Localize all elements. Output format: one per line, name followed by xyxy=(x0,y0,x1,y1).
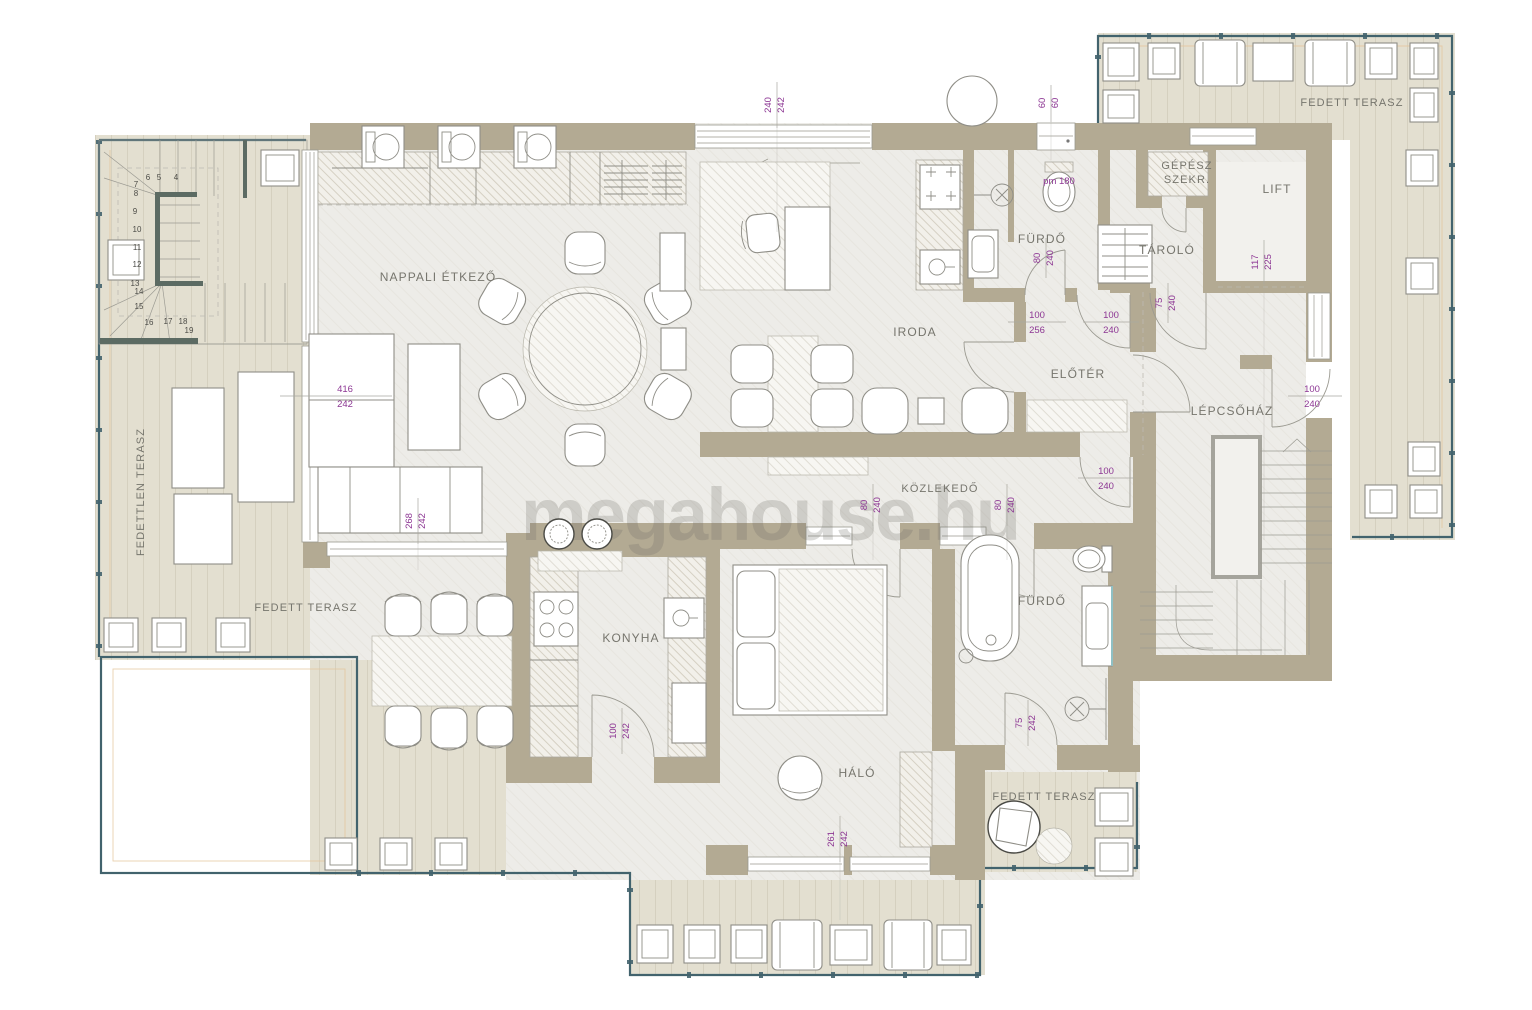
svg-text:240: 240 xyxy=(872,497,883,513)
washer-icon xyxy=(438,126,480,168)
step-number: 10 xyxy=(133,225,142,234)
step-number: 19 xyxy=(185,326,194,335)
room-label-storage: TÁROLÓ xyxy=(1139,242,1195,257)
svg-text:242: 242 xyxy=(776,97,787,113)
svg-text:240: 240 xyxy=(763,97,774,113)
planter xyxy=(1410,43,1438,79)
planter xyxy=(1103,90,1139,123)
dim-wc: pm 180 xyxy=(1043,176,1075,187)
room-label-office: IRODA xyxy=(893,325,937,339)
window xyxy=(1190,128,1256,145)
round-table xyxy=(1036,828,1072,864)
svg-text:225: 225 xyxy=(1263,254,1274,270)
svg-text:100: 100 xyxy=(1098,466,1114,477)
step-number: 4 xyxy=(174,173,179,182)
window-band xyxy=(695,125,872,148)
svg-text:242: 242 xyxy=(839,831,850,847)
svg-text:117: 117 xyxy=(1250,254,1261,269)
planter xyxy=(637,925,673,963)
svg-text:240: 240 xyxy=(1045,250,1056,266)
svg-text:242: 242 xyxy=(1027,715,1038,731)
pillow xyxy=(737,571,775,637)
step-number: 8 xyxy=(134,189,139,198)
floor-plan-canvas: 4 5 6 7 8 9 10 11 12 13 14 15 16 17 18 1… xyxy=(0,0,1532,1010)
svg-text:256: 256 xyxy=(1029,325,1045,336)
kitchenette xyxy=(916,160,963,290)
terrace-label-bottom-right: FEDETT TERASZ xyxy=(992,791,1095,803)
svg-text:75: 75 xyxy=(1014,718,1025,729)
svg-text:240: 240 xyxy=(1098,481,1114,492)
planter xyxy=(1095,788,1133,826)
side-table xyxy=(918,398,944,424)
mat xyxy=(1027,400,1127,432)
planter xyxy=(1406,150,1438,186)
room-label-lift: LIFT xyxy=(1262,182,1291,196)
lounger xyxy=(1305,40,1355,86)
svg-text:242: 242 xyxy=(621,723,632,739)
planter xyxy=(380,838,412,870)
vanity-sink-icon xyxy=(1082,586,1112,666)
planter xyxy=(1148,43,1180,79)
svg-text:268: 268 xyxy=(404,513,415,529)
room-label-living: NAPPALI ÉTKEZŐ xyxy=(380,269,497,284)
vanity-sink-icon xyxy=(968,230,998,278)
room-label-mech-1: GÉPÉSZ xyxy=(1161,159,1212,172)
svg-text:75: 75 xyxy=(1154,298,1165,309)
planter xyxy=(1365,43,1397,79)
room-label-stairwell: LÉPCSŐHÁZ xyxy=(1191,403,1274,418)
step-number: 15 xyxy=(135,302,144,311)
planter xyxy=(1095,838,1133,876)
planter xyxy=(937,925,971,965)
desk xyxy=(785,207,830,290)
room-label-bath-bottom: FÜRDŐ xyxy=(1018,593,1066,608)
lift-room xyxy=(1216,162,1306,281)
room-label-corridor: KÖZLEKEDŐ xyxy=(901,481,978,495)
planter xyxy=(1410,88,1438,122)
step-number: 7 xyxy=(134,180,139,189)
svg-text:100: 100 xyxy=(1029,310,1045,321)
svg-text:242: 242 xyxy=(417,513,428,529)
svg-text:261: 261 xyxy=(826,831,837,847)
planter xyxy=(216,618,250,652)
svg-text:60: 60 xyxy=(1037,98,1048,109)
dining-table xyxy=(523,287,647,411)
planter xyxy=(104,618,138,652)
bedroom-armchair xyxy=(778,756,822,800)
planter xyxy=(435,838,467,870)
room-label-mech-2: SZEKR. xyxy=(1164,174,1210,186)
planter xyxy=(731,925,767,963)
window xyxy=(1308,293,1330,359)
mat xyxy=(538,551,622,571)
planter xyxy=(684,925,720,963)
svg-text:242: 242 xyxy=(337,399,353,410)
planter xyxy=(1406,258,1438,294)
washer-icon xyxy=(514,126,556,168)
step-number: 6 xyxy=(146,173,151,182)
hanger-icons xyxy=(604,160,682,200)
outdoor-dining-set xyxy=(372,592,513,750)
meeting-table xyxy=(768,336,818,432)
planter xyxy=(1103,43,1139,81)
planter xyxy=(152,618,186,652)
planter xyxy=(1365,485,1397,518)
step-number: 11 xyxy=(133,243,142,252)
svg-text:80: 80 xyxy=(993,500,1004,511)
svg-text:240: 240 xyxy=(1167,295,1178,311)
step-number: 17 xyxy=(164,317,173,326)
stove-icon xyxy=(534,592,578,646)
lounge-chair xyxy=(988,801,1040,853)
room-label-bath-top: FÜRDŐ xyxy=(1018,231,1066,246)
step-number: 16 xyxy=(145,318,154,327)
svg-text:240: 240 xyxy=(1103,325,1119,336)
svg-text:80: 80 xyxy=(859,500,870,511)
step-number: 5 xyxy=(157,173,162,182)
glass-door xyxy=(1037,123,1075,150)
svg-text:240: 240 xyxy=(1006,497,1017,513)
toilet-icon xyxy=(1073,546,1112,572)
planter xyxy=(830,925,872,965)
planter xyxy=(1253,43,1293,81)
bed xyxy=(733,565,887,715)
svg-text:416: 416 xyxy=(337,384,353,395)
terrace-label-left: FEDETTLEN TERASZ xyxy=(135,428,147,556)
wardrobe xyxy=(900,752,932,847)
toilet-icon xyxy=(1043,162,1075,212)
planter xyxy=(1408,442,1440,476)
step-number: 9 xyxy=(133,207,138,216)
pillow xyxy=(737,643,775,709)
terrace-label-bottom-left: FEDETT TERASZ xyxy=(254,602,357,614)
lounger xyxy=(884,920,932,970)
step-number: 14 xyxy=(135,287,144,296)
room-label-foyer: ELŐTÉR xyxy=(1051,366,1106,381)
lounger xyxy=(1195,40,1245,86)
lounger xyxy=(772,920,822,970)
svg-text:80: 80 xyxy=(1032,253,1043,264)
washer-icon xyxy=(362,126,404,168)
room-label-bedroom: HÁLÓ xyxy=(838,765,875,780)
svg-text:240: 240 xyxy=(1304,399,1320,410)
bathtub-icon xyxy=(959,535,1019,663)
floor-plan: 4 5 6 7 8 9 10 11 12 13 14 15 16 17 18 1… xyxy=(0,0,1532,1010)
svg-text:100: 100 xyxy=(608,723,619,739)
svg-text:100: 100 xyxy=(1304,384,1320,395)
planter xyxy=(1410,485,1442,518)
step-number: 12 xyxy=(133,260,142,269)
planter xyxy=(325,838,357,870)
svg-text:60: 60 xyxy=(1050,98,1061,109)
room-label-kitchen: KONYHA xyxy=(602,631,659,645)
step-number: 18 xyxy=(179,317,188,326)
mat xyxy=(768,457,868,475)
column xyxy=(947,76,997,126)
terrace-label-top-right: FEDETT TERASZ xyxy=(1300,97,1403,109)
svg-text:100: 100 xyxy=(1103,310,1119,321)
